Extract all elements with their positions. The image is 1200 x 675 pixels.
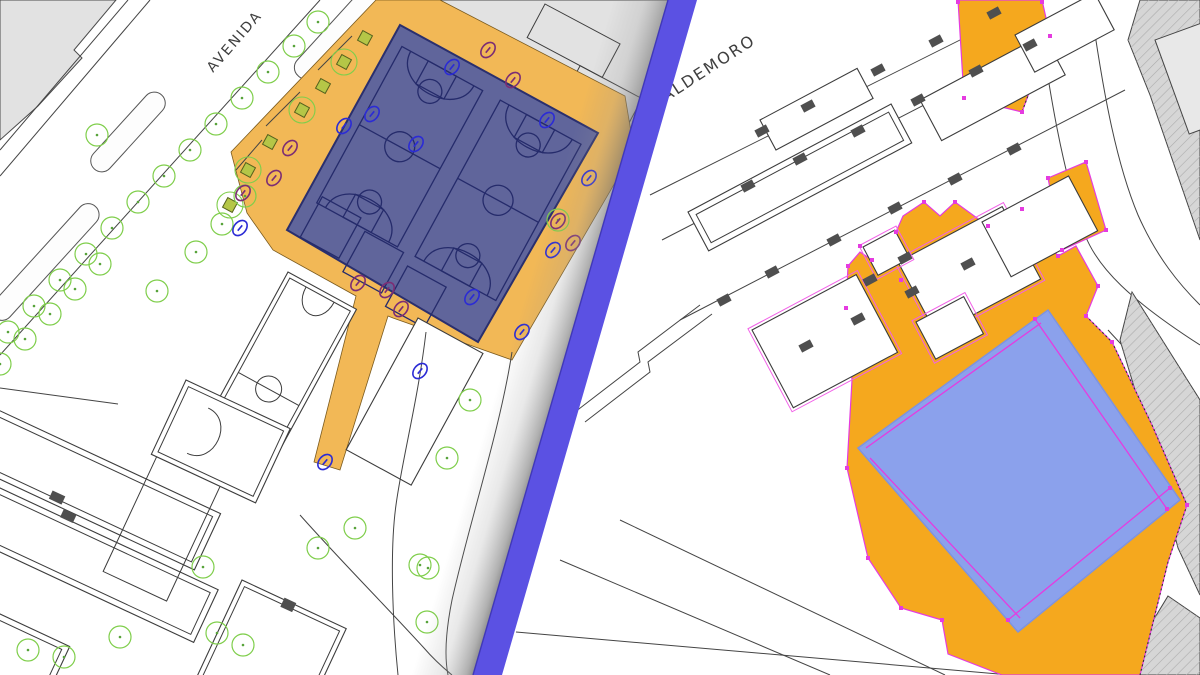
vertex-node-icon [844,306,848,310]
vertex-node-icon [1046,176,1050,180]
tree-center-dot [244,195,247,198]
tree-center-dot [33,305,36,308]
vertex-node-icon [986,224,990,228]
vertex-node-icon [1104,228,1108,232]
plans-canvas: AVENIDA [0,0,1200,675]
vertex-node-icon [1020,207,1024,211]
tree-center-dot [195,251,198,254]
vertex-node-icon [1084,314,1088,318]
vertex-node-icon [899,278,903,282]
tree-center-dot [24,338,27,341]
tree-center-dot [85,253,88,256]
tree-center-dot [59,279,62,282]
tree-center-dot [99,263,102,266]
tree-center-dot [137,201,140,204]
tree-center-dot [96,134,99,137]
vertex-node-icon [962,96,966,100]
tree-center-dot [215,123,218,126]
vertex-node-icon [866,556,870,560]
vertex-node-icon [1006,618,1010,622]
tree-center-dot [163,175,166,178]
vertex-node-icon [894,230,898,234]
tree-center-dot [74,288,77,291]
vertex-node-icon [922,200,926,204]
vertex-node-icon [1048,34,1052,38]
tree-center-dot [242,644,245,647]
vertex-node-icon [846,264,850,268]
tree-center-dot [469,399,472,402]
vertex-node-icon [845,466,849,470]
vertex-node-icon [1168,486,1172,490]
vertex-node-icon [1033,317,1037,321]
tree-center-dot [354,527,357,530]
vertex-node-icon [953,200,957,204]
vertex-node-icon [1185,503,1189,507]
tree-center-dot [63,656,66,659]
vertex-node-icon [1056,254,1060,258]
tree-center-dot [7,331,10,334]
tree-center-dot [267,71,270,74]
site-plan-comparison: AVENIDA [0,0,1200,675]
tree-center-dot [202,566,205,569]
vertex-node-icon [1020,110,1024,114]
tree-center-dot [419,564,422,567]
vertex-node-icon [899,606,903,610]
vertex-node-icon [1096,284,1100,288]
tree-center-dot [49,313,52,316]
tree-center-dot [317,21,320,24]
vertex-node-icon [870,258,874,262]
tree-center-dot [216,632,219,635]
vertex-node-icon [858,244,862,248]
vertex-node-icon [940,618,944,622]
tree-center-dot [427,567,430,570]
vertex-node-icon [1165,507,1169,511]
vertex-node-icon [1040,0,1044,4]
vertex-node-icon [1084,160,1088,164]
tree-center-dot [119,636,122,639]
tree-center-dot [241,97,244,100]
vertex-node-icon [956,0,960,4]
tree-center-dot [189,149,192,152]
tree-center-dot [293,45,296,48]
tree-center-dot [446,457,449,460]
vertex-node-icon [1110,340,1114,344]
vertex-node-icon [1060,248,1064,252]
tree-center-dot [317,547,320,550]
tree-center-dot [27,649,30,652]
tree-center-dot [111,227,114,230]
tree-center-dot [221,223,224,226]
tree-center-dot [156,290,159,293]
